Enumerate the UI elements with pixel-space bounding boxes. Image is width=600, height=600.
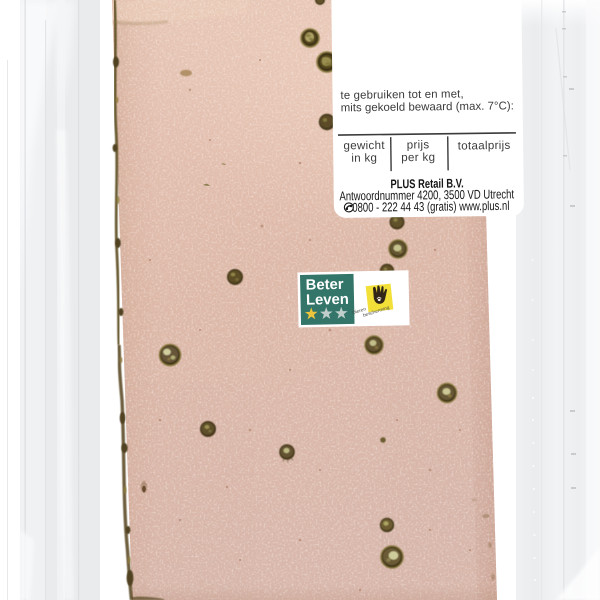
svg-text:in kg: in kg: [351, 151, 377, 164]
svg-text:per kg: per kg: [401, 151, 435, 164]
svg-text:0800 - 222 44 43 (gratis) www.: 0800 - 222 44 43 (gratis) www.plus.nl: [352, 200, 509, 216]
svg-text:prijs: prijs: [407, 138, 430, 151]
svg-text:mits gekoeld bewaard (max. 7°C: mits gekoeld bewaard (max. 7°C):: [341, 100, 514, 114]
svg-text:gewicht: gewicht: [343, 139, 385, 153]
svg-text:te gebruiken tot en met,: te gebruiken tot en met,: [340, 88, 463, 102]
svg-text:Leven: Leven: [306, 292, 349, 309]
svg-text:totaalprijs: totaalprijs: [458, 139, 511, 153]
